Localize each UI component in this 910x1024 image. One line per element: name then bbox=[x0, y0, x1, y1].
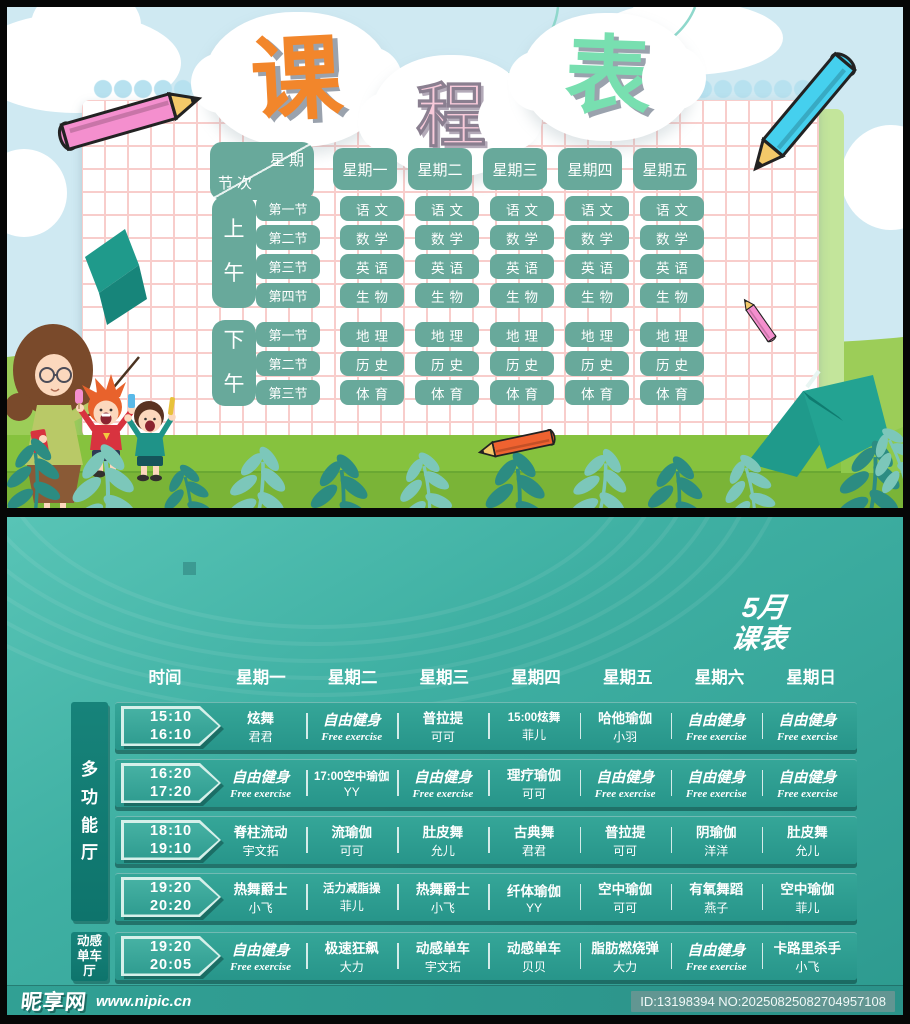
schedule-row: 第四节 生物 生物 生物 生物 生物 bbox=[256, 283, 704, 308]
subject-cell: 语文 bbox=[340, 196, 404, 221]
day-header-row: 星期一 星期二 星期三 星期四 星期五 bbox=[333, 148, 697, 190]
subject-cell: 语文 bbox=[490, 196, 554, 221]
subject-cell: 英语 bbox=[415, 254, 479, 279]
class-cell: 极速狂飙大力 bbox=[306, 932, 397, 980]
subject-cell: 体育 bbox=[340, 380, 404, 405]
subject-cell: 历史 bbox=[640, 351, 704, 376]
subject-cell: 历史 bbox=[490, 351, 554, 376]
subject-cell: 地理 bbox=[565, 322, 629, 347]
day-header: 星期一 bbox=[333, 148, 397, 190]
subject-cell: 体育 bbox=[415, 380, 479, 405]
title-cloud-3: 表 bbox=[522, 13, 694, 141]
subject-cell: 语文 bbox=[565, 196, 629, 221]
subject-cell: 体育 bbox=[565, 380, 629, 405]
title-char-1: 课 bbox=[249, 31, 346, 128]
class-cell: 自由健身Free exercise bbox=[306, 702, 397, 750]
schedule-row: 第一节 语文 语文 语文 语文 语文 bbox=[256, 196, 704, 221]
class-cell: 动感单车贝贝 bbox=[488, 932, 579, 980]
class-cell: 自由健身Free exercise bbox=[762, 759, 853, 807]
period-cell: 第四节 bbox=[256, 283, 320, 308]
gym-row: 18:1019:10 脊柱流动宇文拓 流瑜伽可可 肚皮舞允儿 古典舞君君 普拉提… bbox=[115, 816, 857, 864]
gym-row: 19:2020:05 自由健身Free exercise 极速狂飙大力 动感单车… bbox=[115, 932, 857, 980]
month-title-line1: 5月 bbox=[697, 591, 832, 624]
watermark-bar: 昵享网 www.nipic.cn ID:13198394 NO:20250825… bbox=[7, 985, 903, 1015]
class-cell: 古典舞君君 bbox=[488, 816, 579, 864]
class-cell: 热舞爵士小飞 bbox=[215, 873, 306, 921]
schedule-row: 第二节 数学 数学 数学 数学 数学 bbox=[256, 225, 704, 250]
day-header: 星期三 bbox=[483, 148, 547, 190]
subject-cell: 生物 bbox=[565, 283, 629, 308]
class-cell: 纤体瑜伽YY bbox=[488, 873, 579, 921]
class-cell: 热舞爵士小飞 bbox=[397, 873, 488, 921]
day-header: 星期四 bbox=[490, 664, 582, 690]
class-cell: 空中瑜伽菲儿 bbox=[762, 873, 853, 921]
subject-cell: 生物 bbox=[490, 283, 554, 308]
class-cell: 自由健身Free exercise bbox=[671, 702, 762, 750]
gym-row: 16:2017:20 自由健身Free exercise 17:00空中瑜伽YY… bbox=[115, 759, 857, 807]
class-cell: 自由健身Free exercise bbox=[580, 759, 671, 807]
day-header: 星期二 bbox=[307, 664, 399, 690]
period-cell: 第一节 bbox=[256, 196, 320, 221]
day-header: 星期四 bbox=[558, 148, 622, 190]
subject-cell: 历史 bbox=[340, 351, 404, 376]
cloud bbox=[841, 125, 903, 230]
month-title-line2: 课表 bbox=[692, 624, 826, 656]
subject-cell: 英语 bbox=[490, 254, 554, 279]
class-cell: 理疗瑜伽可可 bbox=[488, 759, 579, 807]
time-header: 时间 bbox=[115, 664, 215, 690]
subject-cell: 历史 bbox=[415, 351, 479, 376]
subject-cell: 语文 bbox=[640, 196, 704, 221]
subject-cell: 数学 bbox=[565, 225, 629, 250]
decorative-square bbox=[183, 562, 196, 575]
subject-cell: 地理 bbox=[640, 322, 704, 347]
period-cell: 第二节 bbox=[256, 351, 320, 376]
subject-cell: 数学 bbox=[340, 225, 404, 250]
cloud bbox=[7, 149, 67, 237]
day-header: 星期五 bbox=[582, 664, 674, 690]
subject-cell: 数学 bbox=[415, 225, 479, 250]
subject-cell: 地理 bbox=[415, 322, 479, 347]
class-cell: 脂肪燃烧弹大力 bbox=[580, 932, 671, 980]
class-cell: 空中瑜伽可可 bbox=[580, 873, 671, 921]
time-badge: 19:2020:20 bbox=[121, 877, 221, 917]
subject-cell: 英语 bbox=[640, 254, 704, 279]
class-cell: 哈他瑜伽小羽 bbox=[580, 702, 671, 750]
site-url: www.nipic.cn bbox=[96, 993, 191, 1010]
month-title: 5月 课表 bbox=[692, 591, 831, 656]
gym-header-row: 时间 星期一 星期二 星期三 星期四 星期五 星期六 星期日 bbox=[115, 664, 857, 690]
class-cell: 17:00空中瑜伽YY bbox=[306, 759, 397, 807]
class-cell: 普拉提可可 bbox=[580, 816, 671, 864]
schedule-row: 第一节 地理 地理 地理 地理 地理 bbox=[256, 322, 704, 347]
period-cell: 第二节 bbox=[256, 225, 320, 250]
subject-cell: 地理 bbox=[340, 322, 404, 347]
subject-cell: 生物 bbox=[415, 283, 479, 308]
subject-cell: 生物 bbox=[640, 283, 704, 308]
subject-cell: 地理 bbox=[490, 322, 554, 347]
period-cell: 第三节 bbox=[256, 254, 320, 279]
corner-header-cell: 星期 节次 bbox=[210, 142, 314, 200]
site-logo: 昵享网 bbox=[19, 986, 88, 1015]
gym-row: 19:2020:20 热舞爵士小飞 活力减脂操菲儿 热舞爵士小飞 纤体瑜伽YY … bbox=[115, 873, 857, 921]
subject-cell: 英语 bbox=[565, 254, 629, 279]
subject-cell: 体育 bbox=[490, 380, 554, 405]
subject-cell: 数学 bbox=[490, 225, 554, 250]
section-afternoon: 下午 bbox=[212, 320, 256, 406]
class-cell: 有氧舞蹈燕子 bbox=[671, 873, 762, 921]
subject-cell: 语文 bbox=[415, 196, 479, 221]
class-cell: 普拉提可可 bbox=[397, 702, 488, 750]
day-header: 星期三 bbox=[398, 664, 490, 690]
paper-green-edge bbox=[818, 109, 844, 439]
class-cell: 肚皮舞允儿 bbox=[762, 816, 853, 864]
time-badge: 19:2020:05 bbox=[121, 936, 221, 976]
gym-may-schedule-poster: 5月 课表 时间 星期一 星期二 星期三 星期四 星期五 星期六 星期日 多功 … bbox=[7, 517, 903, 1015]
time-badge: 18:1019:10 bbox=[121, 820, 221, 860]
title-char-3: 表 bbox=[564, 33, 653, 122]
kids-class-schedule-poster: 课 程 表 星期 节次 星期一 星期二 星期三 星期四 星期五 上午 下午 第一… bbox=[7, 7, 903, 508]
day-header: 星期二 bbox=[408, 148, 472, 190]
period-cell: 第一节 bbox=[256, 322, 320, 347]
class-cell: 肚皮舞允儿 bbox=[397, 816, 488, 864]
corner-week-label: 星期 bbox=[270, 149, 308, 170]
schedule-row: 第三节 体育 体育 体育 体育 体育 bbox=[256, 380, 704, 405]
corner-period-label: 节次 bbox=[218, 172, 256, 193]
class-cell: 15:00炫舞菲儿 bbox=[488, 702, 579, 750]
class-cell: 流瑜伽可可 bbox=[306, 816, 397, 864]
venue-spinning-hall: 动感单车 厅 bbox=[71, 932, 108, 981]
class-cell: 脊柱流动宇文拓 bbox=[215, 816, 306, 864]
day-header: 星期六 bbox=[674, 664, 766, 690]
time-badge: 16:2017:20 bbox=[121, 763, 221, 803]
schedule-row: 第三节 英语 英语 英语 英语 英语 bbox=[256, 254, 704, 279]
day-header: 星期五 bbox=[633, 148, 697, 190]
class-cell: 自由健身Free exercise bbox=[671, 759, 762, 807]
class-cell: 活力减脂操菲儿 bbox=[306, 873, 397, 921]
image-id-badge: ID:13198394 NO:20250825082704957108 bbox=[631, 991, 895, 1012]
schedule-row: 第二节 历史 历史 历史 历史 历史 bbox=[256, 351, 704, 376]
day-header: 星期一 bbox=[215, 664, 307, 690]
period-cell: 第三节 bbox=[256, 380, 320, 405]
class-cell: 卡路里杀手小飞 bbox=[762, 932, 853, 980]
class-cell: 自由健身Free exercise bbox=[215, 932, 306, 980]
subject-cell: 英语 bbox=[340, 254, 404, 279]
class-cell: 阴瑜伽洋洋 bbox=[671, 816, 762, 864]
gym-row: 15:1016:10 炫舞君君 自由健身Free exercise 普拉提可可 … bbox=[115, 702, 857, 750]
title-char-2: 程 bbox=[416, 81, 486, 151]
section-morning: 上午 bbox=[212, 196, 256, 308]
class-cell: 自由健身Free exercise bbox=[762, 702, 853, 750]
class-cell: 动感单车宇文拓 bbox=[397, 932, 488, 980]
venue-multifunction-hall: 多功 能厅 bbox=[71, 702, 108, 921]
time-badge: 15:1016:10 bbox=[121, 706, 221, 746]
subject-cell: 体育 bbox=[640, 380, 704, 405]
subject-cell: 数学 bbox=[640, 225, 704, 250]
class-cell: 炫舞君君 bbox=[215, 702, 306, 750]
subject-cell: 生物 bbox=[340, 283, 404, 308]
class-cell: 自由健身Free exercise bbox=[397, 759, 488, 807]
class-cell: 自由健身Free exercise bbox=[671, 932, 762, 980]
day-header: 星期日 bbox=[765, 664, 857, 690]
subject-cell: 历史 bbox=[565, 351, 629, 376]
class-cell: 自由健身Free exercise bbox=[215, 759, 306, 807]
